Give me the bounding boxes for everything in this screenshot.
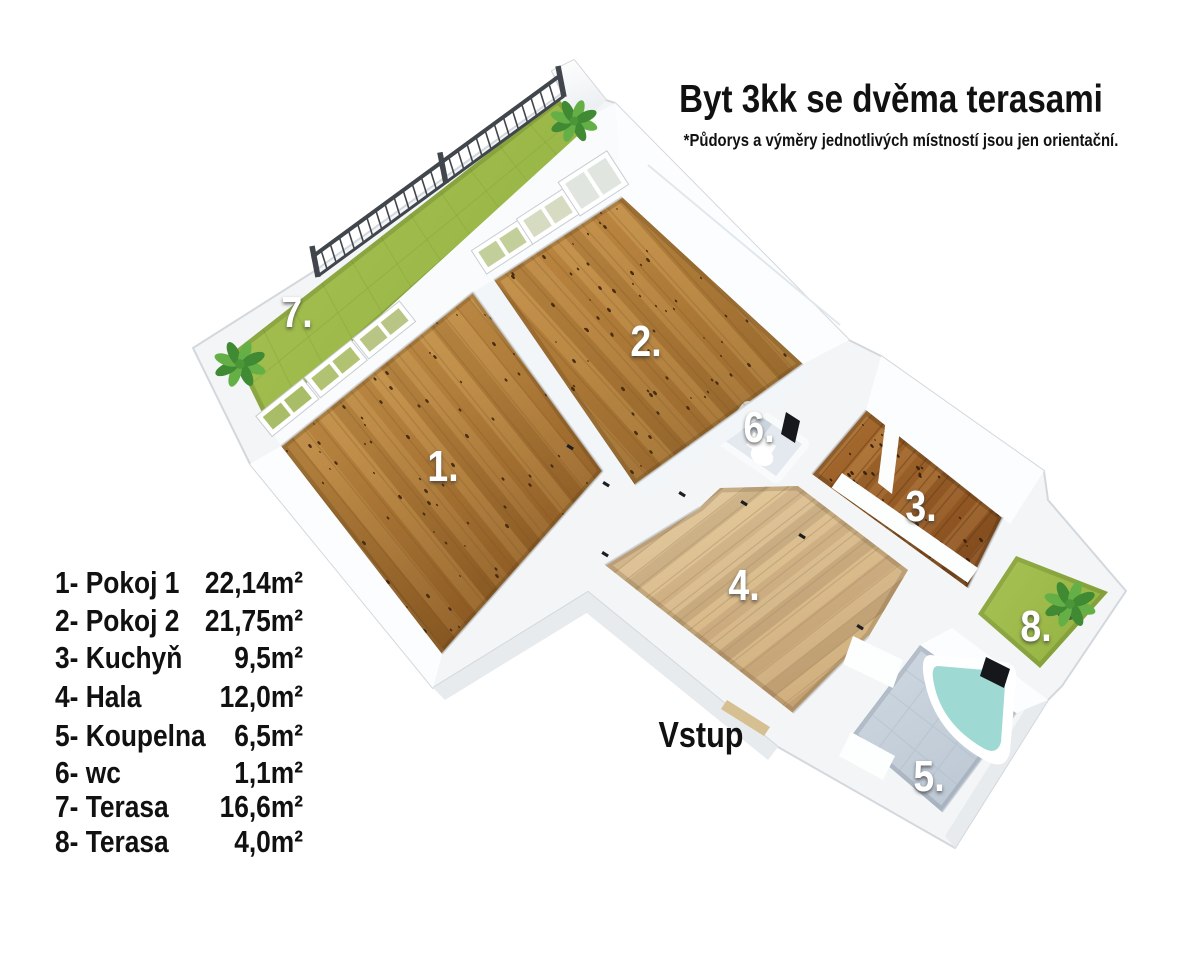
svg-text:8.: 8. (1020, 601, 1051, 651)
svg-text:Vstup: Vstup (659, 716, 744, 756)
svg-text:22,14m²: 22,14m² (205, 566, 303, 600)
svg-text:3.: 3. (905, 481, 936, 531)
svg-text:Byt 3kk se dvěma terasami: Byt 3kk se dvěma terasami (679, 76, 1103, 120)
svg-text:16,6m²: 16,6m² (220, 790, 303, 824)
svg-text:21,75m²: 21,75m² (205, 604, 303, 638)
svg-text:8- Terasa: 8- Terasa (55, 825, 170, 859)
svg-text:4- Hala: 4- Hala (55, 680, 142, 714)
svg-text:4.: 4. (728, 560, 759, 610)
svg-text:7.: 7. (281, 287, 312, 337)
svg-text:3- Kuchyň: 3- Kuchyň (55, 641, 182, 675)
svg-text:5- Koupelna: 5- Koupelna (55, 719, 207, 753)
svg-text:6- wc: 6- wc (55, 756, 121, 790)
svg-text:1.: 1. (427, 441, 458, 491)
svg-text:5.: 5. (913, 751, 944, 801)
svg-text:1- Pokoj 1: 1- Pokoj 1 (55, 566, 179, 600)
svg-text:6.: 6. (743, 402, 774, 452)
svg-text:1,1m²: 1,1m² (234, 756, 303, 790)
svg-text:6,5m²: 6,5m² (234, 719, 303, 753)
svg-text:2.: 2. (630, 316, 661, 366)
svg-text:2- Pokoj 2: 2- Pokoj 2 (55, 604, 179, 638)
svg-text:*Půdorys a výměry jednotlivých: *Půdorys a výměry jednotlivých místností… (684, 131, 1119, 150)
svg-text:7- Terasa: 7- Terasa (55, 790, 170, 824)
svg-text:12,0m²: 12,0m² (220, 680, 303, 714)
svg-text:9,5m²: 9,5m² (234, 641, 303, 675)
svg-text:4,0m²: 4,0m² (234, 825, 303, 859)
